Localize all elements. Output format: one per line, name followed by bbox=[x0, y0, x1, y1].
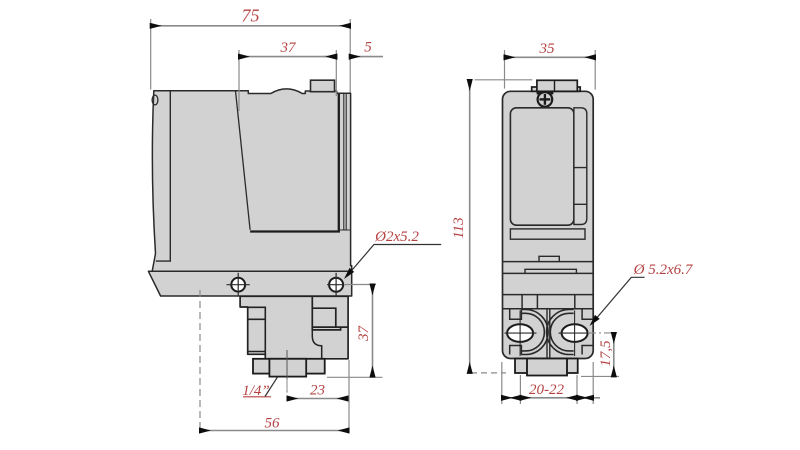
svg-text:56: 56 bbox=[265, 416, 281, 432]
svg-text:Ø2x5.2: Ø2x5.2 bbox=[374, 229, 419, 245]
svg-text:37: 37 bbox=[280, 40, 298, 56]
svg-text:20-22: 20-22 bbox=[529, 382, 564, 398]
svg-text:5: 5 bbox=[364, 40, 372, 56]
svg-text:113: 113 bbox=[451, 217, 467, 238]
svg-text:37: 37 bbox=[356, 325, 372, 343]
svg-text:17,5: 17,5 bbox=[598, 340, 614, 367]
svg-text:35: 35 bbox=[539, 41, 556, 57]
svg-text:75: 75 bbox=[242, 6, 260, 26]
svg-text:Ø 5.2x6.7: Ø 5.2x6.7 bbox=[633, 262, 694, 278]
svg-text:23: 23 bbox=[310, 383, 325, 399]
